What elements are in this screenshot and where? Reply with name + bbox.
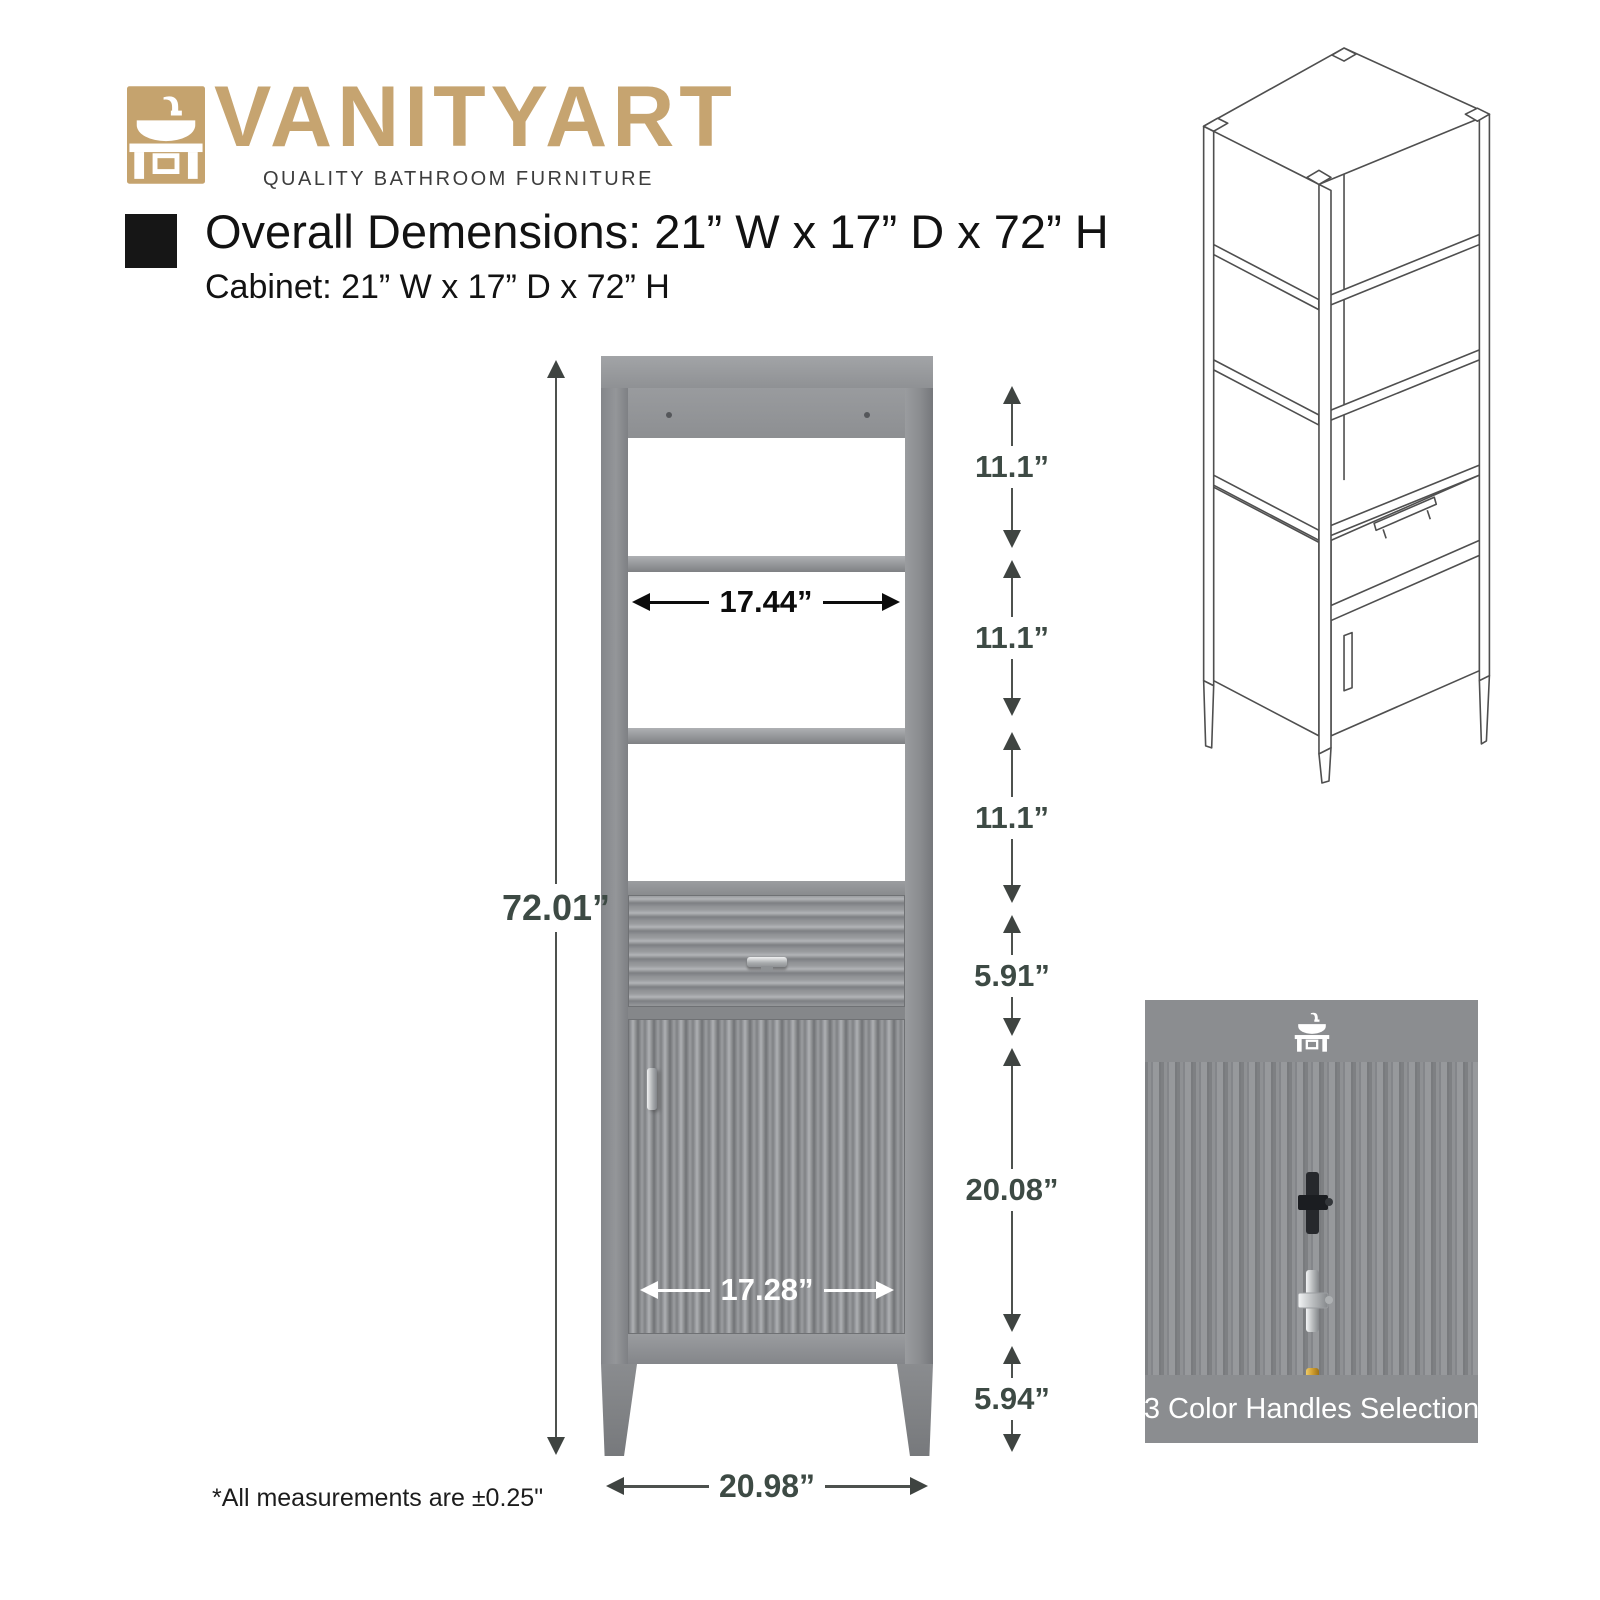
arrow-down-icon [1003,530,1021,548]
dimension-overall-height: 72.01” [486,360,626,1455]
cabinet-top-cap [601,356,933,390]
dimension-label: 5.94” [974,1378,1050,1420]
arrow-up-icon [1003,915,1021,933]
dimension-label: 20.98” [719,1468,815,1505]
drawer-handle-chrome [747,957,787,967]
dimension-line [1011,578,1013,617]
dimension-label: 5.91” [974,955,1050,997]
cabinet-back-rail [628,388,905,441]
arrow-down-icon [1003,1314,1021,1332]
shelf-1 [628,556,905,572]
dimension-line [1011,1211,1013,1314]
dimension-shelf-gap-2: 11.1” [942,560,1082,716]
dimension-shelf-gap-3: 11.1” [942,732,1082,903]
arrow-right-icon [910,1477,928,1495]
arrow-down-icon [1003,1434,1021,1452]
handles-selection-panel: 3 Color Handles Selection [1145,1000,1478,1443]
dimension-line [824,1289,876,1292]
brand-tagline: QUALITY BATHROOM FURNITURE [263,168,654,191]
dimension-label: 72.01” [502,884,610,932]
title-bullet-square [125,214,177,268]
handles-panel-caption-band: 3 Color Handles Selection [1145,1375,1478,1443]
dimension-door-width: 17.28” [640,1272,894,1308]
dimension-label: 11.1” [975,797,1049,839]
screw-hole [666,412,672,418]
dimension-line [1011,750,1013,797]
arrow-up-icon [1003,560,1021,578]
dimension-line [555,932,557,1438]
fluted-drawer [628,895,905,1007]
arrow-left-icon [640,1281,658,1299]
dimension-label: 20.08” [965,1169,1058,1211]
cabinet-isometric-line-drawing [1158,34,1510,786]
dimension-line [825,1485,910,1488]
dimension-line [1011,404,1013,446]
arrow-left-icon [632,593,650,611]
cabinet-bottom-rail [601,1334,933,1364]
dimension-leg-height: 5.94” [942,1346,1082,1452]
arrow-down-icon [547,1437,565,1455]
dimension-label: 11.1” [975,617,1049,659]
dimension-line [650,601,709,604]
handles-panel-caption: 3 Color Handles Selection [1144,1393,1479,1426]
handles-panel-wood-background [1145,1062,1478,1375]
dimension-label: 17.44” [719,584,812,620]
dimension-line [1011,839,1013,886]
dimension-line [1011,1066,1013,1169]
arrow-up-icon [1003,1346,1021,1364]
drawer-door-divider [628,1007,905,1019]
arrow-up-icon [547,360,565,378]
arrow-up-icon [1003,732,1021,750]
dimension-label: 11.1” [975,446,1049,488]
arrow-up-icon [1003,386,1021,404]
dimension-line [1011,488,1013,530]
brand-name: VANITYART [214,74,737,160]
dimension-line [624,1485,709,1488]
handles-panel-header-band [1145,1000,1478,1062]
cabinet-right-post [905,388,933,1364]
page-subtitle: Cabinet: 21” W x 17” D x 72” H [205,268,670,307]
dimension-drawer-height: 5.91” [942,915,1082,1036]
dimension-line [1011,659,1013,698]
dimension-line [1011,933,1013,955]
arrow-right-icon [876,1281,894,1299]
sink-logo-icon-white [1291,1008,1333,1054]
screw-hole [864,412,870,418]
handle-option-black [1290,1172,1334,1234]
page-title: Overall Demensions: 21” W x 17” D x 72” … [205,204,1109,259]
spec-sheet-page: VANITYART QUALITY BATHROOM FURNITURE Ove… [0,0,1600,1600]
dimension-line [555,378,557,884]
arrow-left-icon [606,1477,624,1495]
open-shelf-space-3 [628,744,905,881]
arrow-down-icon [1003,885,1021,903]
open-shelf-space-1 [628,438,905,556]
arrow-down-icon [1003,1018,1021,1036]
dimension-line [1011,1364,1013,1378]
door-handle-chrome [647,1068,657,1110]
shelf-2 [628,728,905,744]
dimension-label: 17.28” [720,1272,813,1308]
dimension-line [658,1289,710,1292]
dimension-line [823,601,882,604]
vanityart-sink-logo-icon [127,86,205,184]
arrow-up-icon [1003,1048,1021,1066]
dimension-line [1011,1420,1013,1434]
dimension-line [1011,997,1013,1019]
dimension-door-height: 20.08” [942,1048,1082,1332]
measurement-tolerance-footnote: *All measurements are ±0.25" [212,1484,543,1513]
arrow-down-icon [1003,698,1021,716]
dimension-shelf-gap-1: 11.1” [942,386,1082,548]
cabinet-right-leg [897,1364,933,1456]
arrow-right-icon [882,593,900,611]
handle-option-chrome [1290,1270,1334,1332]
dimension-shelf-inner-width: 17.44” [632,584,900,620]
cabinet-mid-rail [628,881,905,895]
dimension-base-width: 20.98” [606,1468,928,1504]
